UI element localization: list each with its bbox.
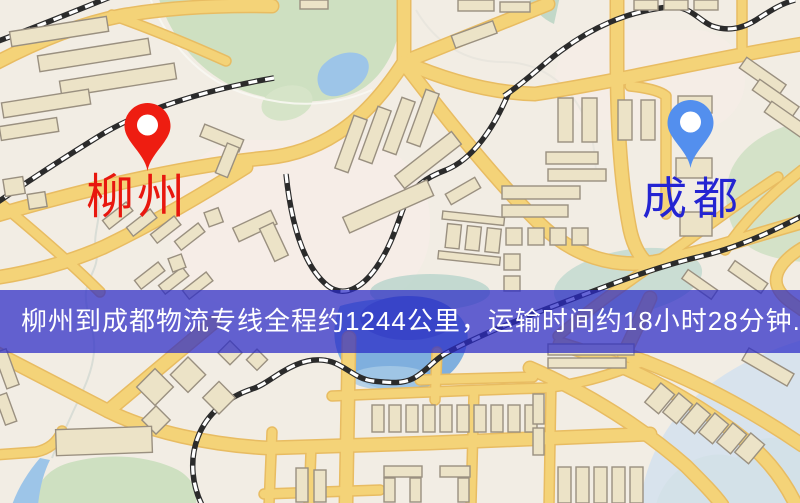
red-pin-icon <box>125 103 171 171</box>
park-southwest <box>36 456 197 503</box>
origin-pin <box>125 103 171 171</box>
route-info-text: 柳州到成都物流专线全程约1244公里，运输时间约18小时28分钟. <box>21 306 800 336</box>
route-info-banner: 柳州到成都物流专线全程约1244公里，运输时间约18小时28分钟. <box>0 290 800 353</box>
destination-city-label: 成都 <box>642 177 744 222</box>
origin-city-label: 柳州 <box>86 174 188 222</box>
map-canvas <box>0 0 800 503</box>
logistics-route-map: 柳州 成都 柳州到成都物流专线全程约1244公里，运输时间约18小时28分钟. <box>0 0 800 503</box>
